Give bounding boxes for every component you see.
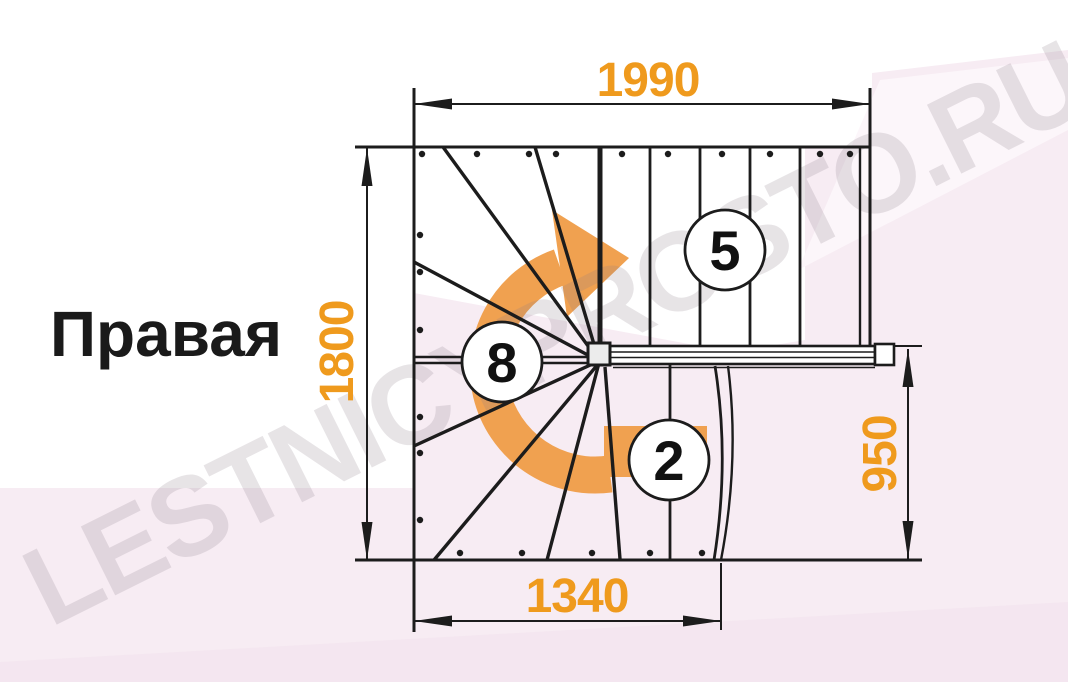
railing [588, 343, 894, 368]
upper-flight-steps-badge: 5 [685, 210, 765, 290]
lower-flight-steps-count: 2 [653, 429, 684, 492]
dimension-label-bottom-width: 1340 [526, 570, 629, 623]
staircase-plan-svg: LESTNICYPROSTO.RU [0, 0, 1068, 682]
railing-end-post [875, 344, 894, 365]
lower-flight-steps-badge: 2 [629, 420, 709, 500]
dimension-label-top-width: 1990 [597, 54, 700, 107]
dimension-label-left-height: 1800 [311, 301, 364, 404]
page-title: Правая [50, 298, 282, 370]
winder-steps-badge: 8 [462, 322, 542, 402]
staircase-drawing-page: LESTNICYPROSTO.RU [0, 0, 1068, 682]
newel-post [588, 343, 610, 365]
dimension-label-right-height: 950 [854, 415, 907, 492]
winder-steps-count: 8 [486, 331, 517, 394]
upper-flight-steps-count: 5 [709, 219, 740, 282]
